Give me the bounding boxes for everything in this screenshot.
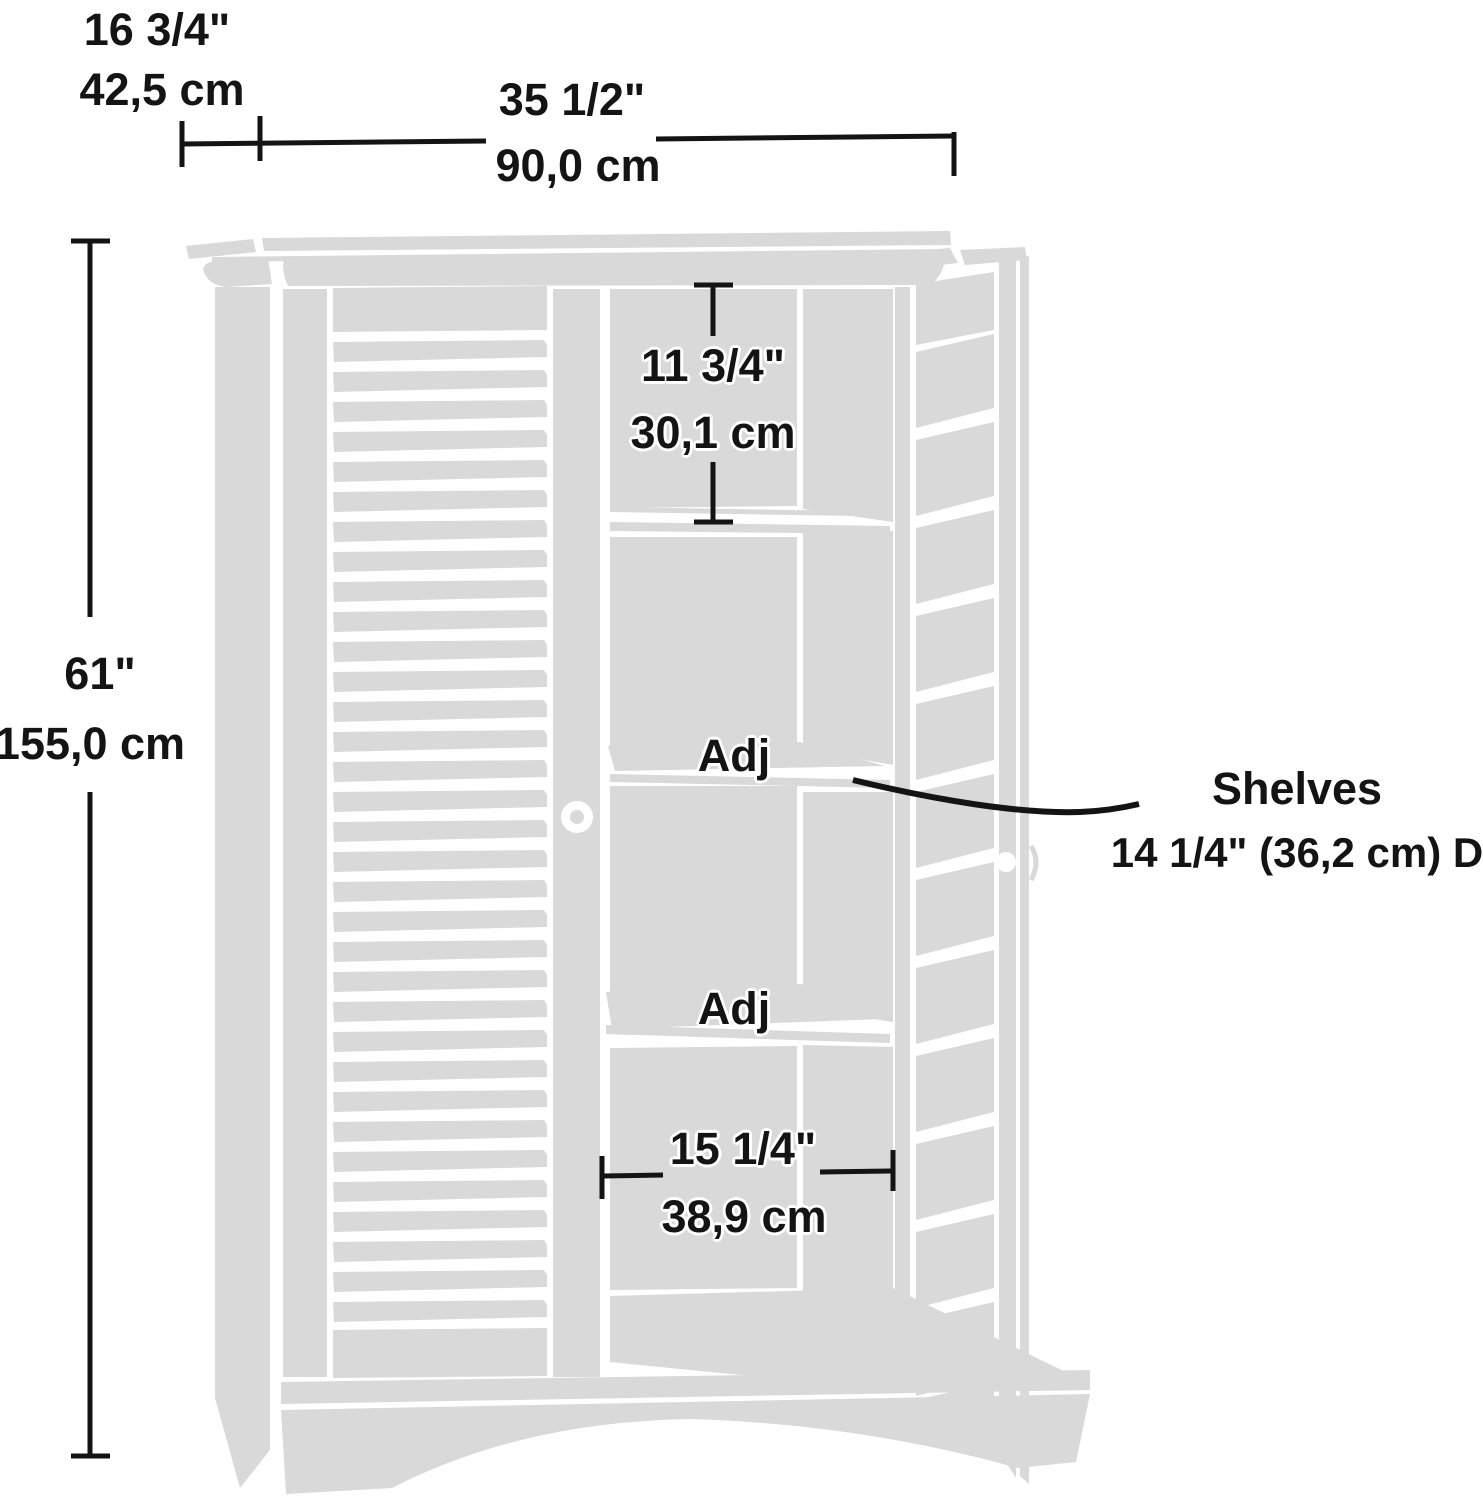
louver-slat: [916, 774, 994, 868]
louver-slat: [333, 820, 547, 842]
right-door-edge-strip: [1020, 256, 1029, 1484]
crown-top-left: [186, 239, 256, 259]
right-door-knob-profile: [1031, 846, 1036, 880]
left-door-bottom-panel: [333, 1328, 547, 1378]
louver-slat: [333, 460, 547, 482]
louver-slat: [916, 422, 994, 516]
left-door-top-panel: [333, 286, 547, 332]
louver-slat: [333, 850, 547, 872]
height-inches-label: 61": [64, 648, 135, 700]
adj-shelf-lower-label: Adj: [698, 983, 771, 1035]
inner-width-cm-label: 38,9 cm: [661, 1191, 826, 1243]
louver-slat: [333, 550, 547, 572]
right-door-top-rail: [916, 272, 994, 345]
louver-slat: [333, 1120, 547, 1142]
louver-slat: [333, 400, 547, 422]
left-side-panel: [215, 287, 270, 1488]
louver-slat: [333, 790, 547, 812]
louver-slat: [333, 1150, 547, 1172]
right-door-knob: [996, 852, 1016, 872]
left-door-right-stile: [553, 289, 600, 1377]
fixed-shelf-front-edge: [610, 522, 890, 534]
shelves-title-label: Shelves: [1212, 763, 1382, 815]
louver-slat: [333, 1030, 547, 1052]
right-door-louver-slats: [916, 334, 994, 1396]
louver-slat: [333, 1270, 547, 1292]
louver-slat: [333, 880, 547, 902]
right-front-frame: [895, 287, 910, 1393]
louver-slat: [333, 760, 547, 782]
louver-slat: [916, 1214, 994, 1308]
louver-slat: [916, 1126, 994, 1220]
louver-slat: [333, 910, 547, 932]
left-door-knob-center: [570, 810, 584, 824]
louver-slat: [916, 334, 994, 428]
louver-slat: [333, 490, 547, 512]
louver-slat: [333, 610, 547, 632]
louver-slat: [333, 640, 547, 662]
louver-slat: [333, 670, 547, 692]
louver-slat: [333, 1060, 547, 1082]
interior-side-bottom: [803, 1045, 893, 1322]
left-door-left-stile: [283, 289, 327, 1377]
louver-slat: [333, 1090, 547, 1112]
shelves-depth-label: 14 1/4" (36,2 cm) D: [1111, 829, 1483, 877]
interior-side-mid: [803, 527, 893, 765]
depth-cm-label: 42,5 cm: [79, 64, 244, 116]
interior-back-mid: [610, 537, 797, 747]
louver-slat: [333, 520, 547, 542]
louver-slat: [333, 430, 547, 452]
width-inches-label: 35 1/2": [499, 74, 645, 126]
louver-slat: [333, 580, 547, 602]
dimension-diagram: 16 3/4" 42,5 cm 35 1/2" 90,0 cm 61" 155,…: [0, 0, 1483, 1500]
top-section-inches-label: 11 3/4": [641, 340, 785, 392]
width-cm-label: 90,0 cm: [495, 140, 660, 192]
depth-inches-label: 16 3/4": [84, 4, 230, 56]
louver-slat: [333, 970, 547, 992]
crown-top-main: [262, 231, 951, 251]
louver-slat: [333, 940, 547, 962]
louver-slat: [333, 700, 547, 722]
louver-slat: [916, 686, 994, 780]
inner-width-inches-label: 15 1/4": [670, 1123, 816, 1175]
right-door-top-piece-2: [960, 247, 1027, 265]
louver-slat: [333, 730, 547, 752]
left-door-louver-slats: [333, 340, 547, 1322]
interior-side-lowmid: [803, 792, 893, 1022]
louver-slat: [916, 598, 994, 692]
interior-side-top: [803, 289, 893, 522]
crown-body-left: [203, 258, 272, 287]
louver-slat: [916, 510, 994, 604]
louver-slat: [333, 1000, 547, 1022]
height-cm-label: 155,0 cm: [0, 718, 185, 770]
louver-slat: [333, 1300, 547, 1322]
interior-back-lowmid: [610, 786, 797, 996]
louver-slat: [916, 950, 994, 1044]
louver-slat: [333, 340, 547, 362]
top-section-cm-label: 30,1 cm: [630, 407, 795, 459]
louver-slat: [916, 862, 994, 956]
adj-shelf-upper-label: Adj: [698, 730, 771, 782]
interior-back-top: [610, 289, 797, 508]
louver-slat: [333, 1240, 547, 1262]
louver-slat: [333, 370, 547, 392]
louver-slat: [916, 1038, 994, 1132]
louver-slat: [333, 1180, 547, 1202]
louver-slat: [333, 1210, 547, 1232]
